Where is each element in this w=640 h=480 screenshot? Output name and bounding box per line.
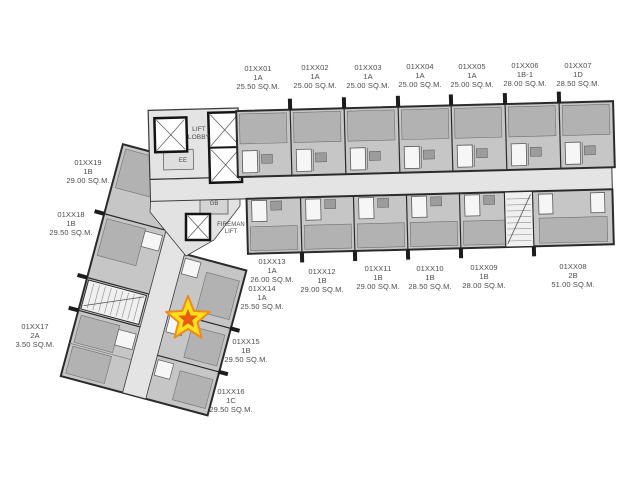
main-staircase	[504, 191, 533, 247]
fireman-lift-shaft	[186, 214, 210, 240]
unit-id: 01XX16	[209, 387, 252, 396]
unit-id: 01XX09	[462, 263, 505, 272]
unit-type: 1A	[250, 266, 293, 275]
unit-id: 01XX14	[240, 284, 283, 293]
unit-type: 1B	[462, 272, 505, 281]
unit-area: 26.00 SQ.M.	[250, 275, 293, 284]
unit-label-01xx18: 01XX18 1B 29.50 SQ.M.	[49, 210, 92, 237]
unit-label-01xx17: 01XX17 2A 3.50 SQ.M.	[16, 322, 55, 349]
lift-lobby-label: LIFT LOBBY	[188, 126, 210, 142]
unit-area: 25.00 SQ.M.	[293, 81, 336, 90]
unit-id: 01XX18	[49, 210, 92, 219]
unit-id: 01XX01	[236, 64, 279, 73]
unit-type: 1C	[209, 396, 252, 405]
unit-area: 25.50 SQ.M.	[236, 82, 279, 91]
unit-label-01xx09: 01XX09 1B 28.00 SQ.M.	[462, 263, 505, 290]
unit-area: 25.50 SQ.M.	[240, 302, 283, 311]
unit-area: 28.50 SQ.M.	[408, 282, 451, 291]
unit-type: 1B	[300, 276, 343, 285]
unit-type: 1A	[398, 71, 441, 80]
unit-type: 1B	[224, 346, 267, 355]
unit-label-01xx05: 01XX05 1A 25.00 SQ.M.	[450, 62, 493, 89]
unit-area: 28.00 SQ.M.	[462, 281, 505, 290]
unit-type: 2B	[551, 271, 594, 280]
unit-label-01xx01: 01XX01 1A 25.50 SQ.M.	[236, 64, 279, 91]
bottom-units-row	[246, 189, 614, 264]
unit-area: 29.50 SQ.M.	[49, 228, 92, 237]
unit-id: 01XX07	[556, 61, 599, 70]
unit-type: 1D	[556, 70, 599, 79]
unit-area: 25.00 SQ.M.	[398, 80, 441, 89]
unit-type: 1A	[240, 293, 283, 302]
gb-label: GB	[210, 201, 219, 208]
unit-area: 28.00 SQ.M.	[503, 79, 546, 88]
unit-id: 01XX06	[503, 61, 546, 70]
lift-lobby	[148, 108, 242, 184]
unit-area: 28.50 SQ.M.	[556, 79, 599, 88]
unit-label-01xx03: 01XX03 1A 25.00 SQ.M.	[346, 63, 389, 90]
unit-area: 25.00 SQ.M.	[346, 81, 389, 90]
main-wing	[148, 90, 617, 266]
unit-id: 01XX12	[300, 267, 343, 276]
unit-id: 01XX03	[346, 63, 389, 72]
unit-type: 1B-1	[503, 70, 546, 79]
unit-label-01xx12: 01XX12 1B 29.00 SQ.M.	[300, 267, 343, 294]
floor-plan-image: LIFT LOBBY EE GB FIREMAN LIFT 01XX01 1A …	[0, 0, 640, 480]
unit-id: 01XX04	[398, 62, 441, 71]
unit-label-01xx15: 01XX15 1B 29.50 SQ.M.	[224, 337, 267, 364]
unit-id: 01XX13	[250, 257, 293, 266]
unit-type: 2A	[16, 331, 55, 340]
unit-area: 51.00 SQ.M.	[551, 280, 594, 289]
lift-shaft-left	[154, 117, 187, 152]
unit-area: 29.50 SQ.M.	[209, 405, 252, 414]
unit-label-01xx19: 01XX19 1B 29.00 SQ.M.	[66, 158, 109, 185]
unit-area: 29.00 SQ.M.	[356, 282, 399, 291]
unit-label-01xx06: 01XX06 1B-1 28.00 SQ.M.	[503, 61, 546, 88]
unit-id: 01XX10	[408, 264, 451, 273]
unit-id: 01XX05	[450, 62, 493, 71]
unit-id: 01XX02	[293, 63, 336, 72]
unit-id: 01XX15	[224, 337, 267, 346]
unit-label-01xx08: 01XX08 2B 51.00 SQ.M.	[551, 262, 594, 289]
unit-type: 1B	[408, 273, 451, 282]
unit-label-01xx13: 01XX13 1A 26.00 SQ.M.	[250, 257, 293, 284]
unit-label-01xx14: 01XX14 1A 25.50 SQ.M.	[240, 284, 283, 311]
unit-id: 01XX08	[551, 262, 594, 271]
unit-type: 1A	[293, 72, 336, 81]
unit-area: 3.50 SQ.M.	[16, 340, 55, 349]
unit-type: 1A	[450, 71, 493, 80]
unit-area: 29.50 SQ.M.	[224, 355, 267, 364]
unit-label-01xx11: 01XX11 1B 29.00 SQ.M.	[356, 264, 399, 291]
unit-label-01xx07: 01XX07 1D 28.50 SQ.M.	[556, 61, 599, 88]
unit-area: 29.00 SQ.M.	[300, 285, 343, 294]
unit-label-01xx10: 01XX10 1B 28.50 SQ.M.	[408, 264, 451, 291]
unit-type: 1B	[66, 167, 109, 176]
unit-id: 01XX19	[66, 158, 109, 167]
fireman-lift-label: FIREMAN LIFT	[217, 222, 245, 236]
ee-label: EE	[179, 158, 187, 165]
unit-id: 01XX17	[16, 322, 55, 331]
unit-id: 01XX11	[356, 264, 399, 273]
unit-area: 29.00 SQ.M.	[66, 176, 109, 185]
unit-type: 1A	[346, 72, 389, 81]
unit-label-01xx02: 01XX02 1A 25.00 SQ.M.	[293, 63, 336, 90]
unit-area: 25.00 SQ.M.	[450, 80, 493, 89]
unit-label-01xx04: 01XX04 1A 25.00 SQ.M.	[398, 62, 441, 89]
unit-type: 1B	[49, 219, 92, 228]
unit-type: 1A	[236, 73, 279, 82]
top-units-row	[236, 90, 615, 177]
unit-label-01xx16: 01XX16 1C 29.50 SQ.M.	[209, 387, 252, 414]
unit-type: 1B	[356, 273, 399, 282]
